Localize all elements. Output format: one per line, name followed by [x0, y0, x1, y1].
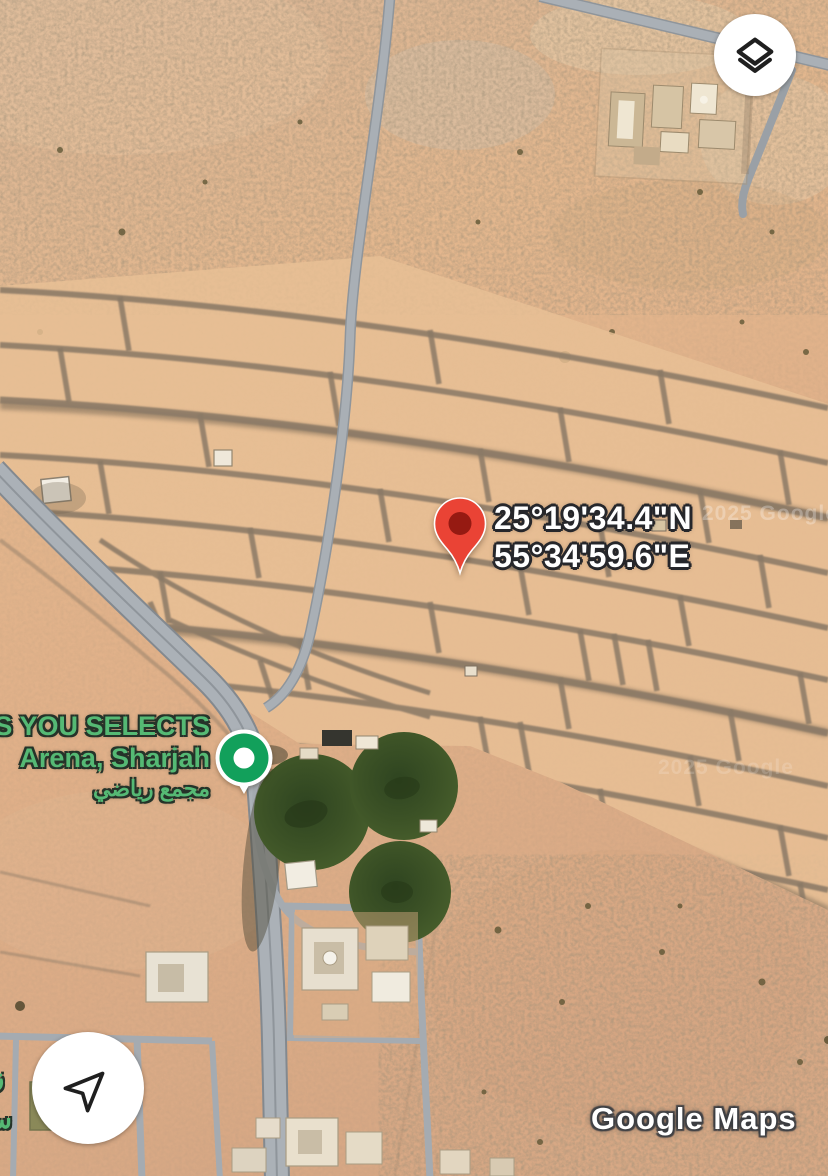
marker-center-dot: [234, 748, 255, 769]
longitude-text: 55°34'59.6"E: [494, 537, 692, 575]
layers-button[interactable]: [714, 14, 796, 96]
place-label[interactable]: CS YOU SELECTS Arena, Sharjah مجمع رياضي: [0, 710, 210, 804]
pin-body: [435, 498, 486, 573]
pin-coordinates-label: 25°19'34.4"N 55°34'59.6"E: [494, 499, 692, 575]
navigation-arrow-icon: [62, 1062, 114, 1114]
map-canvas[interactable]: 2025 Google 2025 Google 25°19'34.4"N 55°…: [0, 0, 828, 1176]
mosque-complex: [294, 912, 418, 1038]
pin-inner-dot: [449, 512, 472, 535]
layers-icon: [732, 32, 778, 78]
latitude-text: 25°19'34.4"N: [494, 499, 692, 537]
place-name-line1: CS YOU SELECTS: [0, 710, 210, 742]
google-maps-watermark: Google Maps: [591, 1101, 797, 1137]
my-location-button[interactable]: [32, 1032, 144, 1144]
green-place-marker[interactable]: [212, 728, 276, 800]
map-copyright-faint: 2025 Google: [658, 756, 794, 780]
satellite-imagery: [0, 0, 828, 1176]
place-name-line2: Arena, Sharjah: [0, 742, 210, 774]
red-map-pin[interactable]: [428, 495, 492, 577]
place-name-arabic: مجمع رياضي: [0, 774, 210, 804]
map-copyright: 2025 Google: [702, 502, 828, 526]
